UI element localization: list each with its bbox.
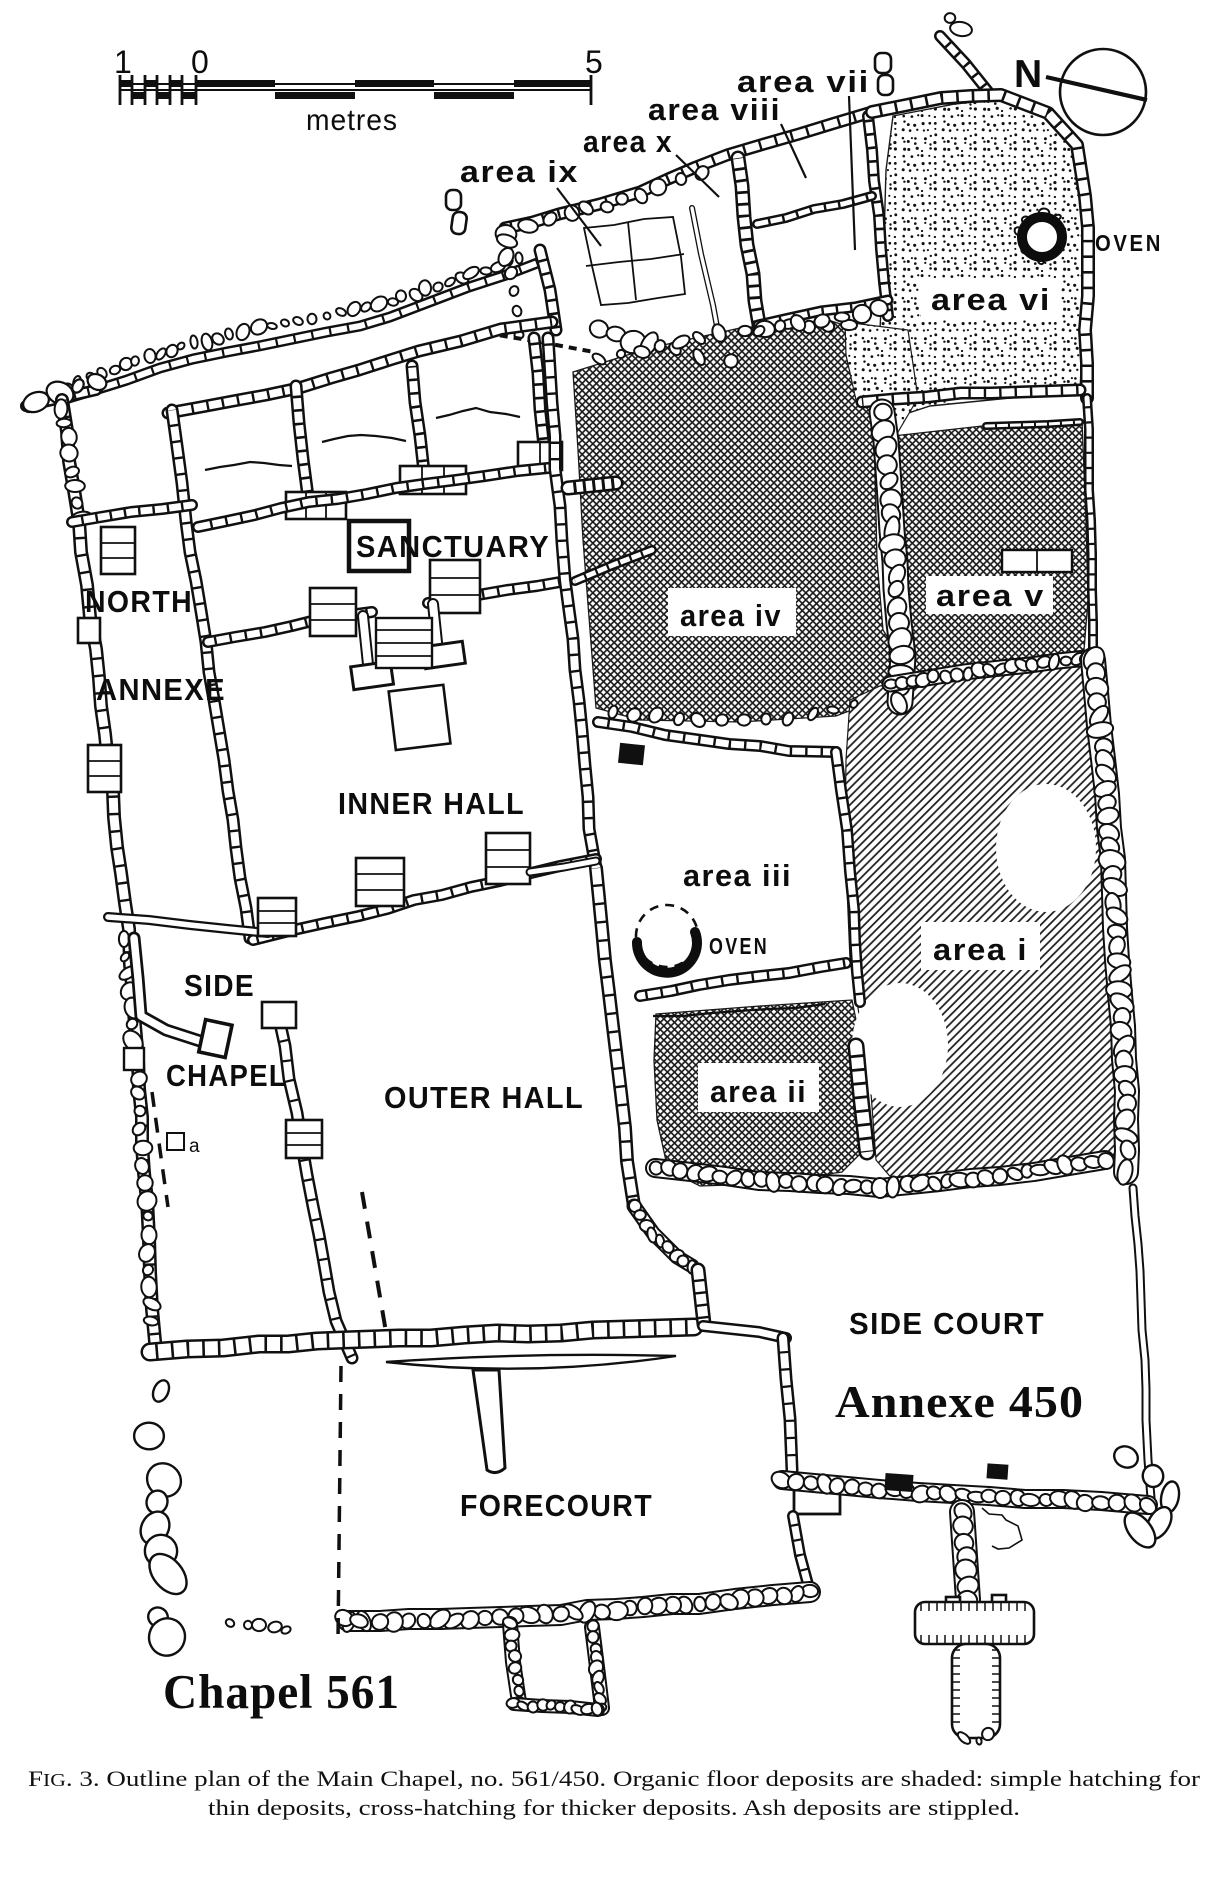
svg-text:N: N bbox=[1014, 53, 1042, 96]
svg-text:area ix: area ix bbox=[460, 154, 579, 189]
svg-text:SIDE COURT: SIDE COURT bbox=[849, 1306, 1045, 1341]
svg-text:thin deposits, cross-hatching: thin deposits, cross-hatching for thicke… bbox=[208, 1795, 1020, 1820]
svg-text:NORTH: NORTH bbox=[85, 584, 193, 619]
svg-text:area iii: area iii bbox=[683, 858, 792, 893]
svg-text:OVEN: OVEN bbox=[1095, 230, 1163, 256]
svg-text:SIDE: SIDE bbox=[184, 968, 255, 1003]
svg-text:FIG. 3. Outline plan of the M: FIG. 3. Outline plan of the Main Chapel,… bbox=[28, 1766, 1201, 1791]
svg-text:area ii: area ii bbox=[710, 1074, 807, 1109]
svg-text:OUTER HALL: OUTER HALL bbox=[384, 1080, 584, 1115]
svg-text:5: 5 bbox=[585, 44, 603, 80]
svg-text:area viii: area viii bbox=[648, 92, 781, 127]
svg-text:Annexe 450: Annexe 450 bbox=[835, 1376, 1084, 1427]
svg-text:Chapel 561: Chapel 561 bbox=[163, 1664, 400, 1719]
svg-text:OVEN: OVEN bbox=[709, 933, 769, 959]
svg-text:a: a bbox=[189, 1136, 200, 1157]
svg-text:metres: metres bbox=[306, 104, 398, 137]
svg-text:area i: area i bbox=[933, 932, 1028, 967]
svg-text:area v: area v bbox=[936, 578, 1045, 613]
svg-text:ANNEXE: ANNEXE bbox=[96, 672, 226, 707]
svg-text:0: 0 bbox=[191, 44, 209, 80]
svg-text:1: 1 bbox=[114, 44, 132, 80]
svg-text:INNER HALL: INNER HALL bbox=[338, 786, 525, 821]
svg-text:FORECOURT: FORECOURT bbox=[460, 1488, 653, 1523]
svg-text:area vi: area vi bbox=[931, 282, 1051, 317]
svg-text:CHAPEL: CHAPEL bbox=[166, 1058, 287, 1093]
svg-text:area iv: area iv bbox=[680, 598, 782, 633]
svg-text:area x: area x bbox=[583, 124, 673, 159]
svg-text:SANCTUARY: SANCTUARY bbox=[356, 529, 550, 564]
